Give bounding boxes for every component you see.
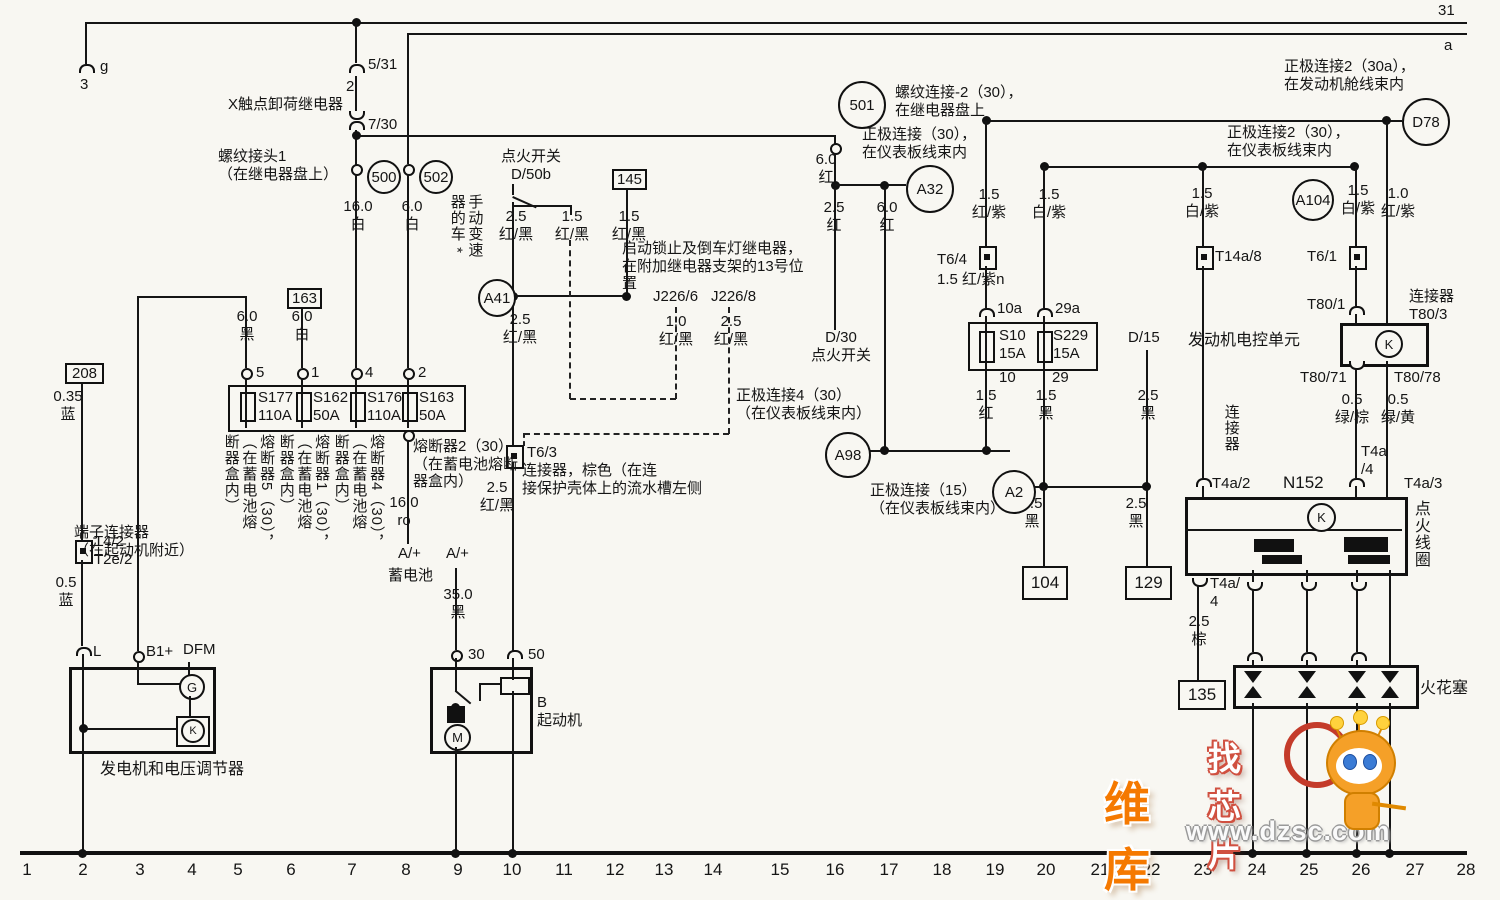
terminal-50 <box>507 650 523 659</box>
terminal-10a-label: 10a <box>997 300 1022 318</box>
track-number: 5 <box>233 860 242 880</box>
track-number: 18 <box>933 860 952 880</box>
track-number: 11 <box>555 860 573 880</box>
ignition-switch-label: 点火开关 D/50b <box>501 148 561 183</box>
mascot-antenna-ball <box>1330 716 1344 730</box>
watermark-line2: 维库一下 <box>1104 768 1153 900</box>
ref-box-104: 104 <box>1022 566 1068 600</box>
battery-fuse-box <box>228 385 466 432</box>
wire <box>479 683 481 701</box>
switch-bar <box>513 205 571 207</box>
starter-winding <box>500 677 530 695</box>
dashed-wire <box>524 433 729 435</box>
wire <box>137 296 139 651</box>
wire-label: 6.0 白 <box>402 198 423 233</box>
terminal-g-label: g <box>100 58 108 76</box>
connector-t80-3-label: 连接器 T80/3 <box>1409 288 1454 323</box>
terminal-50-label: 50 <box>528 646 545 664</box>
terminal <box>403 368 415 380</box>
ecu-glyph: K <box>1385 337 1394 352</box>
junction <box>508 849 517 858</box>
wire <box>82 654 84 854</box>
spark-gap <box>1298 671 1316 683</box>
wire-label: 0.5 蓝 <box>56 574 77 609</box>
ref-box-129: 129 <box>1125 566 1172 600</box>
generator-label: 发电机和电压调节器 <box>100 761 244 780</box>
rail-a-label: a <box>1444 37 1452 55</box>
terminal-t4a-4-label: T4a /4 <box>1361 443 1387 478</box>
wire <box>81 560 83 646</box>
junction <box>1248 849 1257 858</box>
terminal-7-30-label: 7/30 <box>368 116 397 134</box>
coil-output-stage: K <box>1307 503 1336 532</box>
junction <box>880 446 889 455</box>
terminal-g-track: 3 <box>80 76 88 94</box>
terminal-t80-71 <box>1349 361 1365 370</box>
connector-t6-1-label: T6/1 <box>1307 248 1337 266</box>
d15-label: D/15 <box>1128 329 1160 347</box>
wire <box>407 33 409 164</box>
track-number: 3 <box>135 860 144 880</box>
fuse-note: 熔断器4（30）， （在蓄电池熔 断器盒内） <box>332 434 385 584</box>
terminal-g <box>79 64 95 73</box>
pos30-note: 正极连接（30）， 在仪表板线束内 <box>862 126 976 161</box>
wire-label: 1.5 白/紫 <box>1341 182 1375 217</box>
track-number: 25 <box>1300 860 1319 880</box>
wire <box>1043 487 1045 566</box>
spark-gap <box>1298 686 1316 698</box>
wire-label: 2.5 红/黑 <box>714 313 748 348</box>
wire <box>1252 570 1254 582</box>
junction <box>622 292 631 301</box>
terminal-t4a-4-out-label: T4a/ 4 <box>1210 575 1240 610</box>
track-number: 15 <box>771 860 790 880</box>
terminal <box>1247 582 1263 591</box>
terminal <box>297 368 309 380</box>
terminal-30-label: 30 <box>468 646 485 664</box>
battery-terminal: A/+ <box>446 545 469 563</box>
wire <box>835 184 906 186</box>
coil-winding <box>1348 555 1390 564</box>
ref-a2: A2 <box>992 470 1036 514</box>
screw-terminal-500 <box>351 164 363 176</box>
terminal-t4a-4 <box>1349 478 1365 487</box>
track-number: 10 <box>503 860 522 880</box>
wire-label: 1.5 红/黑 <box>555 208 589 243</box>
ecu-symbol: K <box>1375 330 1403 358</box>
wire-label: 0.5 绿/黄 <box>1381 391 1415 426</box>
mascot-body <box>1344 792 1380 830</box>
ref-500: 500 <box>367 160 401 194</box>
track-number: 9 <box>453 860 462 880</box>
mascot-eye <box>1343 754 1357 770</box>
terminal-30 <box>451 650 463 662</box>
wire <box>137 683 180 685</box>
dash-fuse-box <box>968 322 1098 371</box>
wire <box>1355 266 1357 306</box>
track-number: 27 <box>1406 860 1425 880</box>
junction <box>352 131 361 140</box>
terminal-5-31-label: 5/31 <box>368 56 397 74</box>
terminal-10a <box>979 308 995 317</box>
starter-motor-symbol: M <box>444 724 471 751</box>
mascot-antenna-ball <box>1353 710 1368 725</box>
wire-label: 6.0 红 <box>877 199 898 234</box>
ref-a41: A41 <box>478 279 516 317</box>
coil-winding <box>1344 537 1388 552</box>
track-number: 26 <box>1352 860 1371 880</box>
connector-7-30 <box>349 111 365 120</box>
terminal-t4a-2 <box>1196 478 1212 487</box>
terminal-b1-label: B1+ <box>146 643 173 661</box>
terminal-label: 1 <box>311 364 319 382</box>
ref-box-208: 208 <box>65 363 104 384</box>
terminal <box>351 368 363 380</box>
terminal-label: 5 <box>256 364 264 382</box>
wiring-diagram: 31 a g 3 5/31 2 7/30 X触点卸荷继电器 螺纹接头1 （在继电… <box>0 0 1500 900</box>
generator-glyph: G <box>187 680 197 695</box>
wire-label: 2.5 红/黑 <box>499 208 533 243</box>
wire-label: 6.0 白 <box>292 308 313 343</box>
terminal-dfm-label: DFM <box>183 641 216 659</box>
wire <box>138 296 246 298</box>
wire-label: 2.5 红/黑 <box>480 479 514 514</box>
wire <box>188 662 190 675</box>
wire <box>1202 266 1204 478</box>
spark-gap <box>1348 686 1366 698</box>
ref-box-163: 163 <box>287 288 322 309</box>
track-number: 16 <box>826 860 845 880</box>
wire <box>1202 486 1204 497</box>
pos2-30a-note: 正极连接2（30a）， 在发动机舱线束内 <box>1284 58 1415 93</box>
track-number: 12 <box>606 860 625 880</box>
terminal-5-31 <box>349 64 365 73</box>
rail-501 <box>986 120 1402 122</box>
spark-gap <box>1244 686 1262 698</box>
connector-t6-1 <box>1349 246 1367 270</box>
terminal-t4a-3-label: T4a/3 <box>1404 475 1442 493</box>
terminal-t80-1 <box>1349 306 1365 315</box>
wire <box>1306 570 1308 582</box>
spark-gap <box>1381 686 1399 698</box>
wire <box>355 76 357 111</box>
terminal-label: 10 <box>999 369 1016 387</box>
wire-label: 1.5 红 <box>976 387 997 422</box>
track-number: 20 <box>1037 860 1056 880</box>
wire-label: 0.35 蓝 <box>53 388 82 423</box>
terminal-29a <box>1037 308 1053 317</box>
wire <box>83 728 176 730</box>
wire <box>512 691 514 854</box>
wire <box>1356 590 1358 652</box>
terminal <box>1351 652 1367 661</box>
ref-a32: A32 <box>906 165 954 213</box>
track-number: 28 <box>1457 860 1476 880</box>
junction <box>79 724 88 733</box>
spark-gap <box>1381 671 1399 683</box>
ref-box-135: 135 <box>1178 680 1226 710</box>
screw2-note: 螺纹连接-2（30）， 在继电器盘上 <box>895 84 1023 119</box>
terminal <box>1301 652 1317 661</box>
wire-label: 1.5 黑 <box>1036 387 1057 422</box>
terminal-t4a-4-out <box>1192 578 1208 587</box>
terminal-b1 <box>133 651 145 663</box>
j226-8-label: J226/8 <box>711 288 756 306</box>
coil-winding <box>1262 555 1302 564</box>
wire <box>85 22 87 64</box>
connector-t6-3-label: T6/3 <box>527 444 557 462</box>
track-number: 13 <box>655 860 674 880</box>
connector-t6-4 <box>979 246 997 270</box>
spark-plug-label: 火花塞 <box>1420 680 1468 699</box>
wire <box>1252 590 1254 652</box>
wire-label: 1.5 红/紫 <box>972 186 1006 221</box>
track-number: 2 <box>78 860 87 880</box>
junction <box>1352 849 1361 858</box>
terminal-t4a-2-label: T4a/2 <box>1212 475 1250 493</box>
n152-label: N152 <box>1283 473 1324 493</box>
generator-symbol: G <box>179 674 205 700</box>
track-number: 8 <box>401 860 410 880</box>
watermark-line1: 找芯片 <box>1208 732 1249 876</box>
wire-label: 2.5 黑 <box>1126 495 1147 530</box>
connector-t6-4-label: T6/4 <box>937 251 967 269</box>
screw1-label: 螺纹接头1 （在继电器盘上） <box>218 148 338 183</box>
mascot <box>1310 712 1420 842</box>
fuse-note: 熔断器1（30）， （在蓄电池熔 断器盒内） <box>277 434 330 584</box>
wire-label: 6.0 黑 <box>237 308 258 343</box>
track-number: 4 <box>187 860 196 880</box>
wire-label: 2.5 红/黑 <box>503 311 537 346</box>
d30-label: D/30 点火开关 <box>811 329 871 364</box>
wire-label: 1.5 白/紫 <box>1185 185 1219 220</box>
terminal <box>1351 582 1367 591</box>
mascot-antenna-ball <box>1376 716 1390 730</box>
coil-glyph: K <box>1317 510 1326 525</box>
starter-relay-coil <box>447 706 465 723</box>
mascot-eye <box>1363 754 1377 770</box>
j226-6-label: J226/6 <box>653 288 698 306</box>
terminal-t80-71-label: T80/71 <box>1300 369 1347 387</box>
starter-label: B 起动机 <box>537 694 582 729</box>
fuse-note: 熔断器5（30）， （在蓄电池熔 断器盒内） <box>222 434 275 584</box>
wire <box>1389 570 1391 666</box>
terminal-label: 2 <box>418 364 426 382</box>
battery-label: 蓄电池 <box>388 567 433 585</box>
spark-gap <box>1244 671 1262 683</box>
connector-t14a-8-label: T14a/8 <box>1215 248 1262 266</box>
connector-note: 连接器 <box>1222 404 1240 464</box>
junction <box>451 849 460 858</box>
rail-31-label: 31 <box>1438 2 1455 20</box>
wire <box>985 121 987 246</box>
terminal <box>1247 652 1263 661</box>
terminal-connector-note: 端子连接器 （在起动机附近） <box>74 524 194 559</box>
terminal-5-31-track: 2 <box>346 78 354 96</box>
rail-a <box>408 33 1467 35</box>
relay-note: 启动锁止及倒车灯继电器， 在附加继电器支架的13号位 置 <box>622 240 804 293</box>
wire-label: 1.0 红/紫 <box>1381 185 1415 220</box>
wire-label: 6.0 红 <box>816 151 837 186</box>
rail-a2 <box>1032 486 1147 488</box>
wire-label: 16.0 ro <box>389 494 418 529</box>
terminal-label: 4 <box>365 364 373 382</box>
track-number: 24 <box>1248 860 1267 880</box>
dashed-wire <box>570 398 676 400</box>
coil-winding <box>1254 539 1294 552</box>
track-number: 7 <box>347 860 356 880</box>
wire <box>1355 486 1357 497</box>
terminal-l-label: L <box>93 643 101 661</box>
wire <box>455 747 457 854</box>
rail-7-30 <box>356 135 835 137</box>
ref-a98: A98 <box>825 432 871 478</box>
wire <box>189 696 191 717</box>
connector-7-30 <box>349 121 365 130</box>
rail-31 <box>86 22 1467 24</box>
wire-label: 1.5 白/紫 <box>1032 186 1066 221</box>
dashed-wire <box>569 240 571 399</box>
track-number: 19 <box>986 860 1005 880</box>
pos4-30-note: 正极连接4（30） （在仪表板线束内） <box>736 387 871 422</box>
wire <box>480 683 500 685</box>
wire-label: 0.5 绿/棕 <box>1335 391 1369 426</box>
wire-label: 16.0 白 <box>343 198 372 233</box>
terminal-t80-1-label: T80/1 <box>1307 296 1345 314</box>
coil-partition <box>1185 529 1402 531</box>
x-relay-label: X触点卸荷继电器 <box>228 96 343 114</box>
wire-label: 2.5 黑 <box>1138 387 1159 422</box>
wire-label: 1.5 红/黑 <box>612 208 646 243</box>
spark-gap <box>1348 671 1366 683</box>
switch <box>512 184 514 195</box>
track-number: 17 <box>880 860 899 880</box>
terminal-29a-label: 29a <box>1055 300 1080 318</box>
brown-connector-note: 连接器，棕色（在连 接保护壳体上的流水槽左侧 <box>522 462 702 497</box>
terminal-label: 29 <box>1052 369 1069 387</box>
ref-box-145: 145 <box>612 169 647 190</box>
wire <box>1386 121 1388 323</box>
wire-label: 2.5 棕 <box>1189 613 1210 648</box>
wire <box>137 661 139 684</box>
terminal <box>1301 582 1317 591</box>
track-number: 14 <box>704 860 723 880</box>
regulator-box <box>176 716 210 747</box>
terminal-l <box>76 647 92 656</box>
ecu-label: 发动机电控单元 <box>1188 332 1300 351</box>
wire-label: 35.0 黑 <box>443 586 472 621</box>
battery-terminal: A/+ <box>398 545 421 563</box>
pos15-note: 正极连接（15） （在仪表板线束内） <box>870 482 1005 517</box>
wire <box>1355 314 1357 323</box>
junction <box>1385 849 1394 858</box>
connector-t4-2-label: T4/2 T2e/2 <box>94 533 132 568</box>
ref-d78: D78 <box>1402 98 1450 146</box>
wire <box>1306 590 1308 652</box>
pos2-30-note: 正极连接2（30）， 在仪表板线束内 <box>1227 124 1350 159</box>
motor-glyph: M <box>452 730 463 745</box>
track-number: 6 <box>286 860 295 880</box>
ref-a104: A104 <box>1292 179 1334 221</box>
terminal <box>241 368 253 380</box>
ref-502: 502 <box>419 160 453 194</box>
screw-terminal-502 <box>403 164 415 176</box>
junction <box>78 849 87 858</box>
ref-501: 501 <box>838 81 886 129</box>
wire <box>1043 367 1045 487</box>
ignition-coil-label: 点火线圈 <box>1410 500 1429 576</box>
wire <box>355 23 357 63</box>
track-number: 1 <box>22 860 31 880</box>
wire-label: 2.5 红 <box>824 199 845 234</box>
terminal-t80-78-label: T80/78 <box>1394 369 1441 387</box>
wire-label: 1.0 红/黑 <box>659 313 693 348</box>
wire <box>1356 570 1358 582</box>
junction <box>1302 849 1311 858</box>
connector-t6-4-wire: 1.5 红/紫n <box>937 271 1005 289</box>
connector-t14a-8 <box>1196 246 1214 270</box>
